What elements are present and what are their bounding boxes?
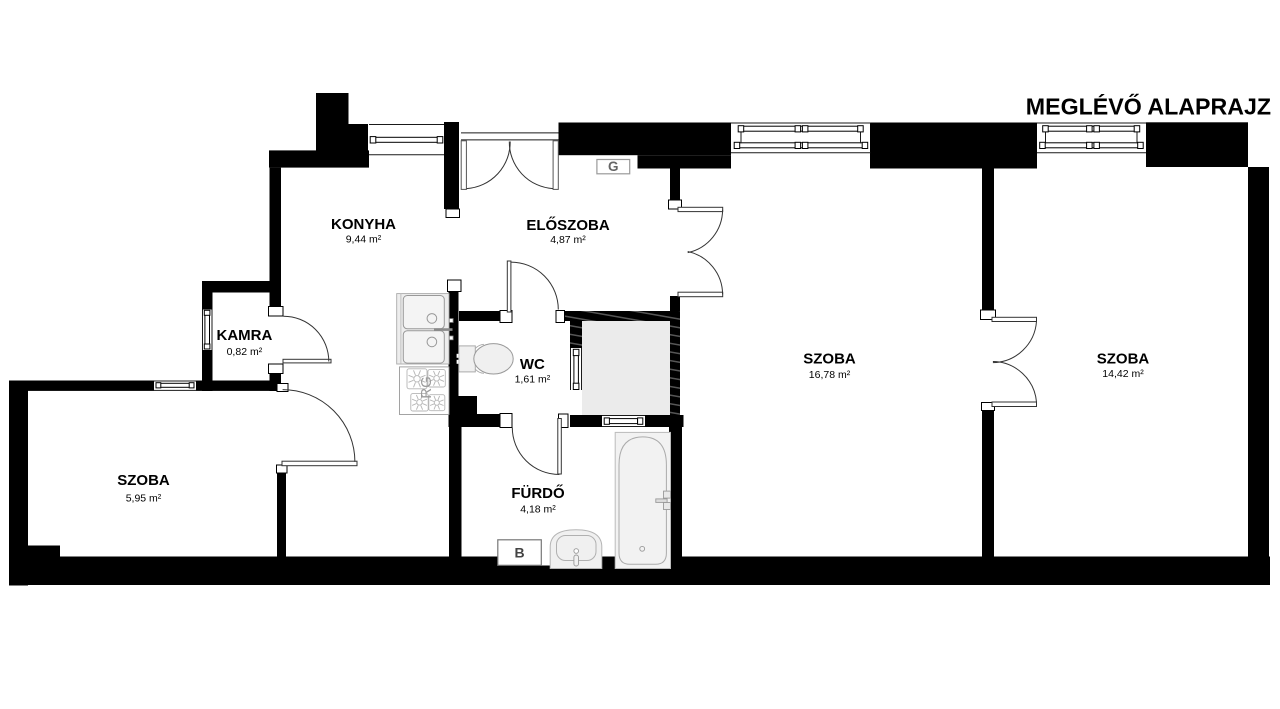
svg-text:SZOBA: SZOBA [803,351,856,368]
svg-text:FÜRDŐ: FÜRDŐ [511,484,565,502]
svg-text:SZOBA: SZOBA [1097,351,1150,368]
svg-text:KAMRA: KAMRA [216,327,272,344]
svg-text:14,42 m²: 14,42 m² [1102,368,1144,380]
svg-text:ELŐSZOBA: ELŐSZOBA [526,216,610,234]
svg-text:SZOBA: SZOBA [117,472,170,489]
svg-text:G: G [608,159,619,174]
svg-text:WC: WC [520,356,545,373]
svg-text:B: B [514,545,524,561]
svg-text:4,18 m²: 4,18 m² [520,503,556,515]
svg-text:4,87 m²: 4,87 m² [550,234,586,246]
svg-text:RG: RG [418,376,435,399]
svg-text:MEGLÉVŐ ALAPRAJZ: MEGLÉVŐ ALAPRAJZ [1026,93,1271,120]
svg-text:16,78 m²: 16,78 m² [809,369,851,381]
svg-text:0,82 m²: 0,82 m² [227,346,263,358]
svg-text:5,95 m²: 5,95 m² [126,492,162,504]
svg-text:KONYHA: KONYHA [331,216,396,233]
svg-text:9,44 m²: 9,44 m² [346,234,382,246]
svg-text:1,61 m²: 1,61 m² [515,374,551,386]
